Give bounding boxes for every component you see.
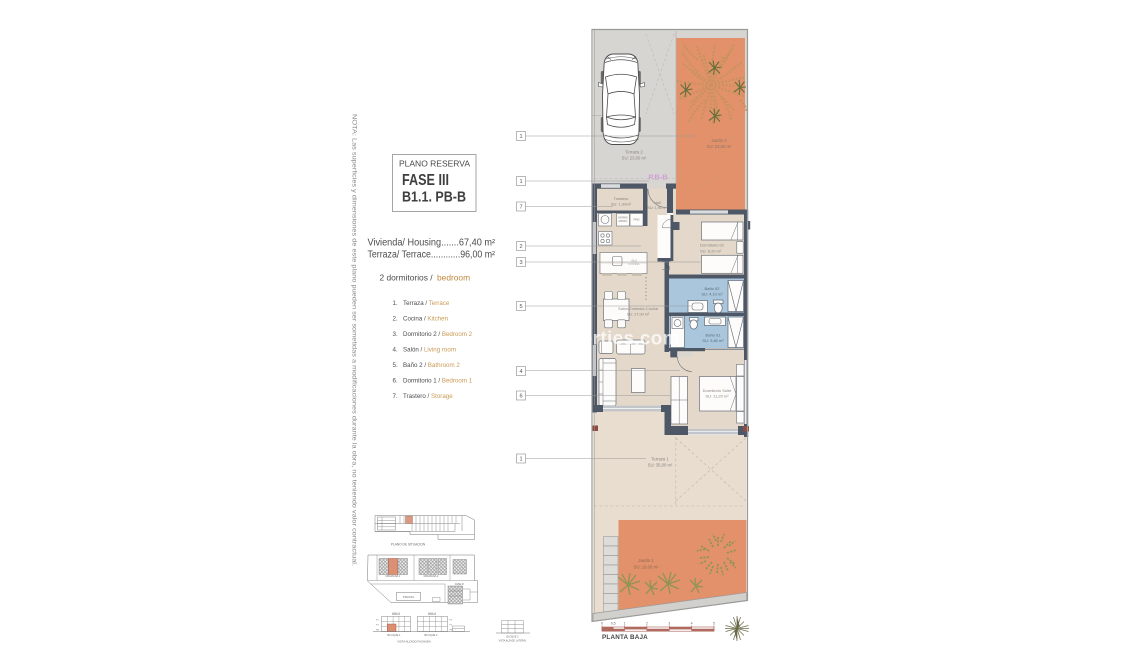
svg-text:7: 7	[519, 205, 522, 211]
svg-text:Jardín 2: Jardín 2	[711, 138, 727, 143]
svg-text:SU: 1,90 m²: SU: 1,90 m²	[647, 206, 668, 210]
svg-text:Baño 02: Baño 02	[705, 286, 721, 291]
svg-text:6.: 6.	[393, 378, 398, 385]
svg-text:MICRO: MICRO	[619, 219, 628, 223]
svg-text:SU: 11,20 m²: SU: 11,20 m²	[705, 394, 729, 399]
svg-text:PLANO RESERVA: PLANO RESERVA	[399, 159, 470, 169]
svg-text:1: 1	[624, 621, 626, 625]
svg-text:BLOQUE 3: BLOQUE 3	[507, 636, 520, 639]
svg-text:FASE III: FASE III	[455, 583, 464, 586]
svg-text:2.: 2.	[393, 316, 398, 323]
svg-text:Dormitorio 1 / Bedroom 1: Dormitorio 1 / Bedroom 1	[403, 378, 473, 385]
svg-text:2: 2	[519, 244, 522, 250]
svg-text:PLANO DE SITUACION: PLANO DE SITUACION	[391, 543, 426, 547]
svg-text:0: 0	[601, 621, 603, 625]
svg-text:Baño 01: Baño 01	[706, 333, 722, 338]
svg-text:Trastero: Trastero	[614, 196, 630, 201]
svg-text:Terraza/ Terrace............96: Terraza/ Terrace............96,00 m²	[368, 250, 496, 261]
svg-text:Terraza / Terrace: Terraza / Terrace	[403, 300, 450, 307]
svg-text:Jardín 1: Jardín 1	[638, 558, 654, 563]
svg-text:VISTA ALZADO LATERAL: VISTA ALZADO LATERAL	[499, 640, 527, 643]
svg-text:4.: 4.	[393, 347, 398, 354]
svg-text:Cocina / Kitchen: Cocina / Kitchen	[403, 316, 449, 323]
svg-text:SU: 4,10 m²: SU: 4,10 m²	[701, 292, 723, 297]
svg-text:SU: 23,00 m²: SU: 23,00 m²	[622, 156, 647, 161]
svg-text:COCINA: COCINA	[629, 262, 640, 266]
svg-text:Terraza 1: Terraza 1	[651, 457, 669, 462]
svg-text:3: 3	[519, 260, 522, 266]
svg-text:SU: 27,00 m²: SU: 27,00 m²	[627, 313, 650, 317]
svg-text:FASE III: FASE III	[392, 612, 400, 615]
svg-text:Baño 2 / Bathroom 2: Baño 2 / Bathroom 2	[403, 362, 460, 369]
svg-text:1: 1	[519, 457, 522, 463]
svg-text:0,5: 0,5	[611, 621, 616, 625]
svg-text:BLOQUE 1: BLOQUE 1	[388, 633, 402, 637]
svg-text:5: 5	[519, 304, 522, 310]
svg-text:3: 3	[668, 621, 670, 625]
svg-text:Salón / Living room: Salón / Living room	[403, 347, 456, 354]
svg-text:Vivienda/ Housing.......67,40: Vivienda/ Housing.......67,40 m²	[368, 238, 496, 249]
svg-text:SU: 1,90m²: SU: 1,90m²	[611, 202, 632, 207]
svg-text:FRIG: FRIG	[633, 218, 639, 222]
svg-text:4: 4	[519, 369, 522, 375]
svg-text:PISCINA: PISCINA	[403, 595, 414, 599]
svg-text:1: 1	[519, 179, 522, 185]
svg-text:NOTA: Las superficies y dimens: NOTA: Las superficies y dimensiones de e…	[351, 114, 357, 566]
svg-text:Dormitorio 02: Dormitorio 02	[700, 243, 725, 248]
svg-text:Dormitorio 2 / Bedroom 2: Dormitorio 2 / Bedroom 2	[403, 331, 473, 338]
svg-text:SU: 19,00 m²: SU: 19,00 m²	[634, 565, 659, 570]
svg-text:SU: 3,80 m²: SU: 3,80 m²	[702, 338, 724, 343]
svg-text:6: 6	[519, 394, 522, 400]
svg-text:FASE III: FASE III	[402, 172, 449, 189]
svg-text:SU: 23,00 m²: SU: 23,00 m²	[707, 144, 732, 149]
svg-text:3.: 3.	[393, 331, 398, 338]
svg-text:2 dormitorios /: 2 dormitorios /	[380, 273, 434, 283]
svg-text:BLOQUE 2: BLOQUE 2	[425, 633, 439, 637]
svg-text:5: 5	[713, 621, 715, 625]
svg-text:PLANTA BAJA: PLANTA BAJA	[602, 634, 648, 641]
svg-text:HORNO: HORNO	[618, 216, 628, 220]
svg-text:7.: 7.	[393, 393, 398, 400]
svg-text:MANZANA 2: MANZANA 2	[424, 574, 439, 578]
svg-text:2: 2	[646, 621, 648, 625]
svg-text:1: 1	[519, 134, 522, 140]
svg-text:4: 4	[691, 621, 693, 625]
svg-text:Dormitorio Suite: Dormitorio Suite	[703, 388, 732, 393]
svg-text:FASE III: FASE III	[428, 612, 436, 615]
svg-text:Salón-Comedor-Cocina: Salón-Comedor-Cocina	[618, 307, 659, 311]
svg-text:B1.1. PB-B: B1.1. PB-B	[402, 189, 466, 206]
svg-text:SU: 35,00 m²: SU: 35,00 m²	[648, 463, 673, 468]
svg-text:bedroom: bedroom	[437, 273, 470, 283]
svg-text:VISTA ALZADO FACHADA: VISTA ALZADO FACHADA	[397, 640, 431, 644]
svg-text:Trastero / Storage: Trastero / Storage	[403, 393, 453, 400]
svg-text:Terraza 2: Terraza 2	[625, 150, 643, 155]
svg-text:5.: 5.	[393, 362, 398, 369]
svg-text:operties.com: operties.com	[558, 329, 680, 350]
svg-text:MANZANA 1: MANZANA 1	[386, 574, 401, 578]
svg-text:SU: 8,20 m²: SU: 8,20 m²	[700, 249, 722, 254]
svg-text:1.: 1.	[393, 300, 398, 307]
svg-text:Hall: Hall	[654, 201, 661, 205]
svg-text:P.B-B: P.B-B	[648, 173, 667, 182]
